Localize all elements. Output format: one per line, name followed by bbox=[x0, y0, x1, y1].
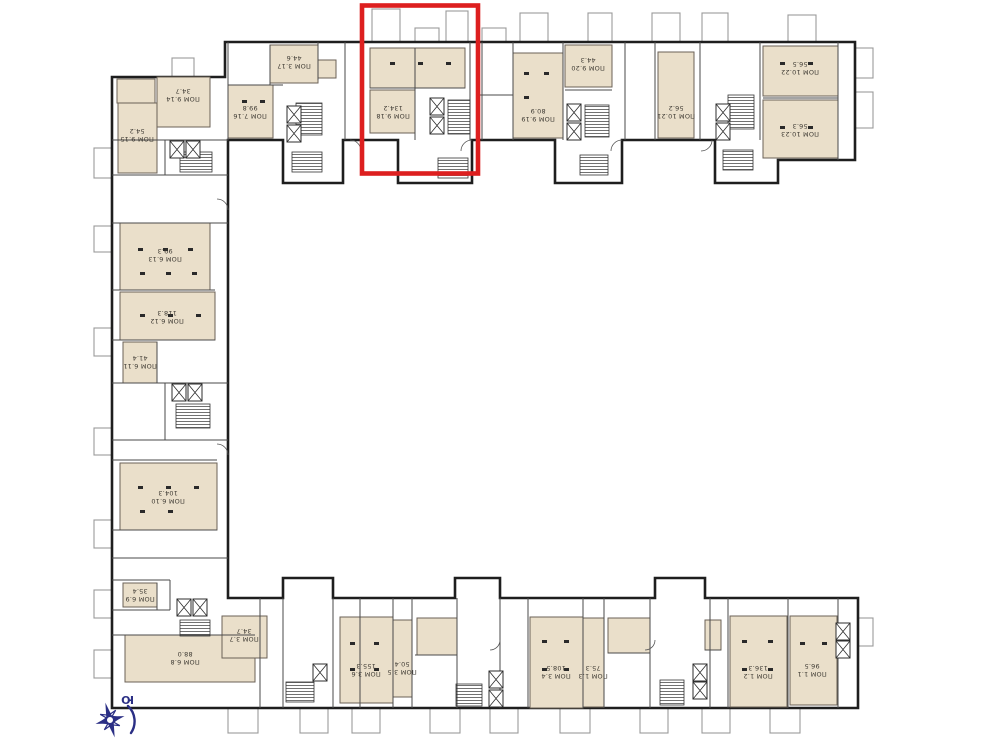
unit-area: 134.2 bbox=[361, 103, 425, 111]
unit-area: 56.3 bbox=[768, 121, 832, 129]
unit-label: ПОМ 1.375.3 bbox=[561, 663, 625, 680]
unit-label: ПОМ 7.1699.8 bbox=[218, 103, 282, 120]
unit-area: 44.6 bbox=[262, 53, 326, 61]
unit-name: ПОМ 9.14 bbox=[151, 94, 215, 102]
unit-label: ПОМ 9.2044.3 bbox=[556, 55, 620, 72]
unit-area: 44.3 bbox=[556, 55, 620, 63]
unit-name: ПОМ 7.16 bbox=[218, 111, 282, 119]
unit-area: 99.3 bbox=[133, 246, 197, 254]
unit-area: 34.7 bbox=[212, 626, 276, 634]
unit-name: ПОМ 3.5 bbox=[370, 667, 434, 675]
unit-name: ПОМ 6.11 bbox=[108, 361, 172, 369]
compass-label: Ю bbox=[121, 693, 134, 706]
unit-label: ПОМ 10.2356.3 bbox=[768, 121, 832, 138]
unit-area: 80.9 bbox=[506, 106, 570, 114]
unit-label: ПОМ 3.1744.6 bbox=[262, 53, 326, 70]
unit-name: ПОМ 3.7 bbox=[212, 634, 276, 642]
unit-name: ПОМ 9.20 bbox=[556, 63, 620, 71]
unit-label: ПОМ 6.1141.4 bbox=[108, 353, 172, 370]
unit-name: ПОМ 6.8 bbox=[153, 657, 217, 665]
floor-plan-page: ПОМ 7.1699.8 ПОМ 3.1744.6 ПОМ 9.18134.2 … bbox=[0, 0, 1000, 750]
unit-name: ПОМ 10.23 bbox=[768, 129, 832, 137]
unit-name: ПОМ 9.19 bbox=[506, 114, 570, 122]
unit-name: ПОМ 9.18 bbox=[361, 111, 425, 119]
unit-name: ПОМ 3.17 bbox=[262, 61, 326, 69]
unit-area: 34.7 bbox=[151, 86, 215, 94]
unit-label-highlighted: ПОМ 9.18134.2 bbox=[361, 103, 425, 120]
unit-label: ПОМ 6.935.4 bbox=[108, 586, 172, 603]
unit-label: ПОМ 6.888.0 bbox=[153, 649, 217, 666]
unit-area: 96.5 bbox=[780, 661, 844, 669]
unit-area: 35.4 bbox=[108, 586, 172, 594]
unit-label: ПОМ 9.1554.2 bbox=[105, 126, 169, 143]
unit-area: 104.3 bbox=[136, 488, 200, 496]
unit-label: ПОМ 6.12118.3 bbox=[135, 308, 199, 325]
unit-name: ПОМ 1.3 bbox=[561, 671, 625, 679]
unit-area: 56.2 bbox=[644, 103, 708, 111]
unit-area: 54.2 bbox=[105, 126, 169, 134]
unit-name: ПОМ 1.1 bbox=[780, 669, 844, 677]
unit-label: ПОМ 3.550.4 bbox=[370, 659, 434, 676]
compass-icon: Ю bbox=[84, 688, 148, 746]
unit-label: ПОМ 3.734.7 bbox=[212, 626, 276, 643]
unit-area: 56.5 bbox=[768, 59, 832, 67]
unit-area: 41.4 bbox=[108, 353, 172, 361]
unit-label: ПОМ 10.2256.5 bbox=[768, 59, 832, 76]
unit-name: ПОМ 6.9 bbox=[108, 594, 172, 602]
unit-name: ПОМ 6.13 bbox=[133, 254, 197, 262]
unit-name: ПОМ 10.22 bbox=[768, 67, 832, 75]
unit-label: ПОМ 1.196.5 bbox=[780, 661, 844, 678]
unit-name: ПОМ 6.10 bbox=[136, 496, 200, 504]
unit-name: ПОМ 9.15 bbox=[105, 134, 169, 142]
building-outline bbox=[112, 42, 858, 708]
unit-area: 99.8 bbox=[218, 103, 282, 111]
unit-label: ПОМ 6.10104.3 bbox=[136, 488, 200, 505]
unit-area: 118.3 bbox=[135, 308, 199, 316]
unit-label: ПОМ 9.1434.7 bbox=[151, 86, 215, 103]
unit-area: 50.4 bbox=[370, 659, 434, 667]
unit-area: 88.0 bbox=[153, 649, 217, 657]
door-arcs bbox=[217, 140, 712, 650]
unit-name: ПОМ 6.12 bbox=[135, 316, 199, 324]
floor-plan-drawing bbox=[0, 0, 1000, 750]
unit-label: ПОМ 9.1980.9 bbox=[506, 106, 570, 123]
unit-name: ПОМ 10.21 bbox=[644, 111, 708, 119]
unit-label: ПОМ 10.2156.2 bbox=[644, 103, 708, 120]
unit-label: ПОМ 6.1399.3 bbox=[133, 246, 197, 263]
unit-area: 75.3 bbox=[561, 663, 625, 671]
